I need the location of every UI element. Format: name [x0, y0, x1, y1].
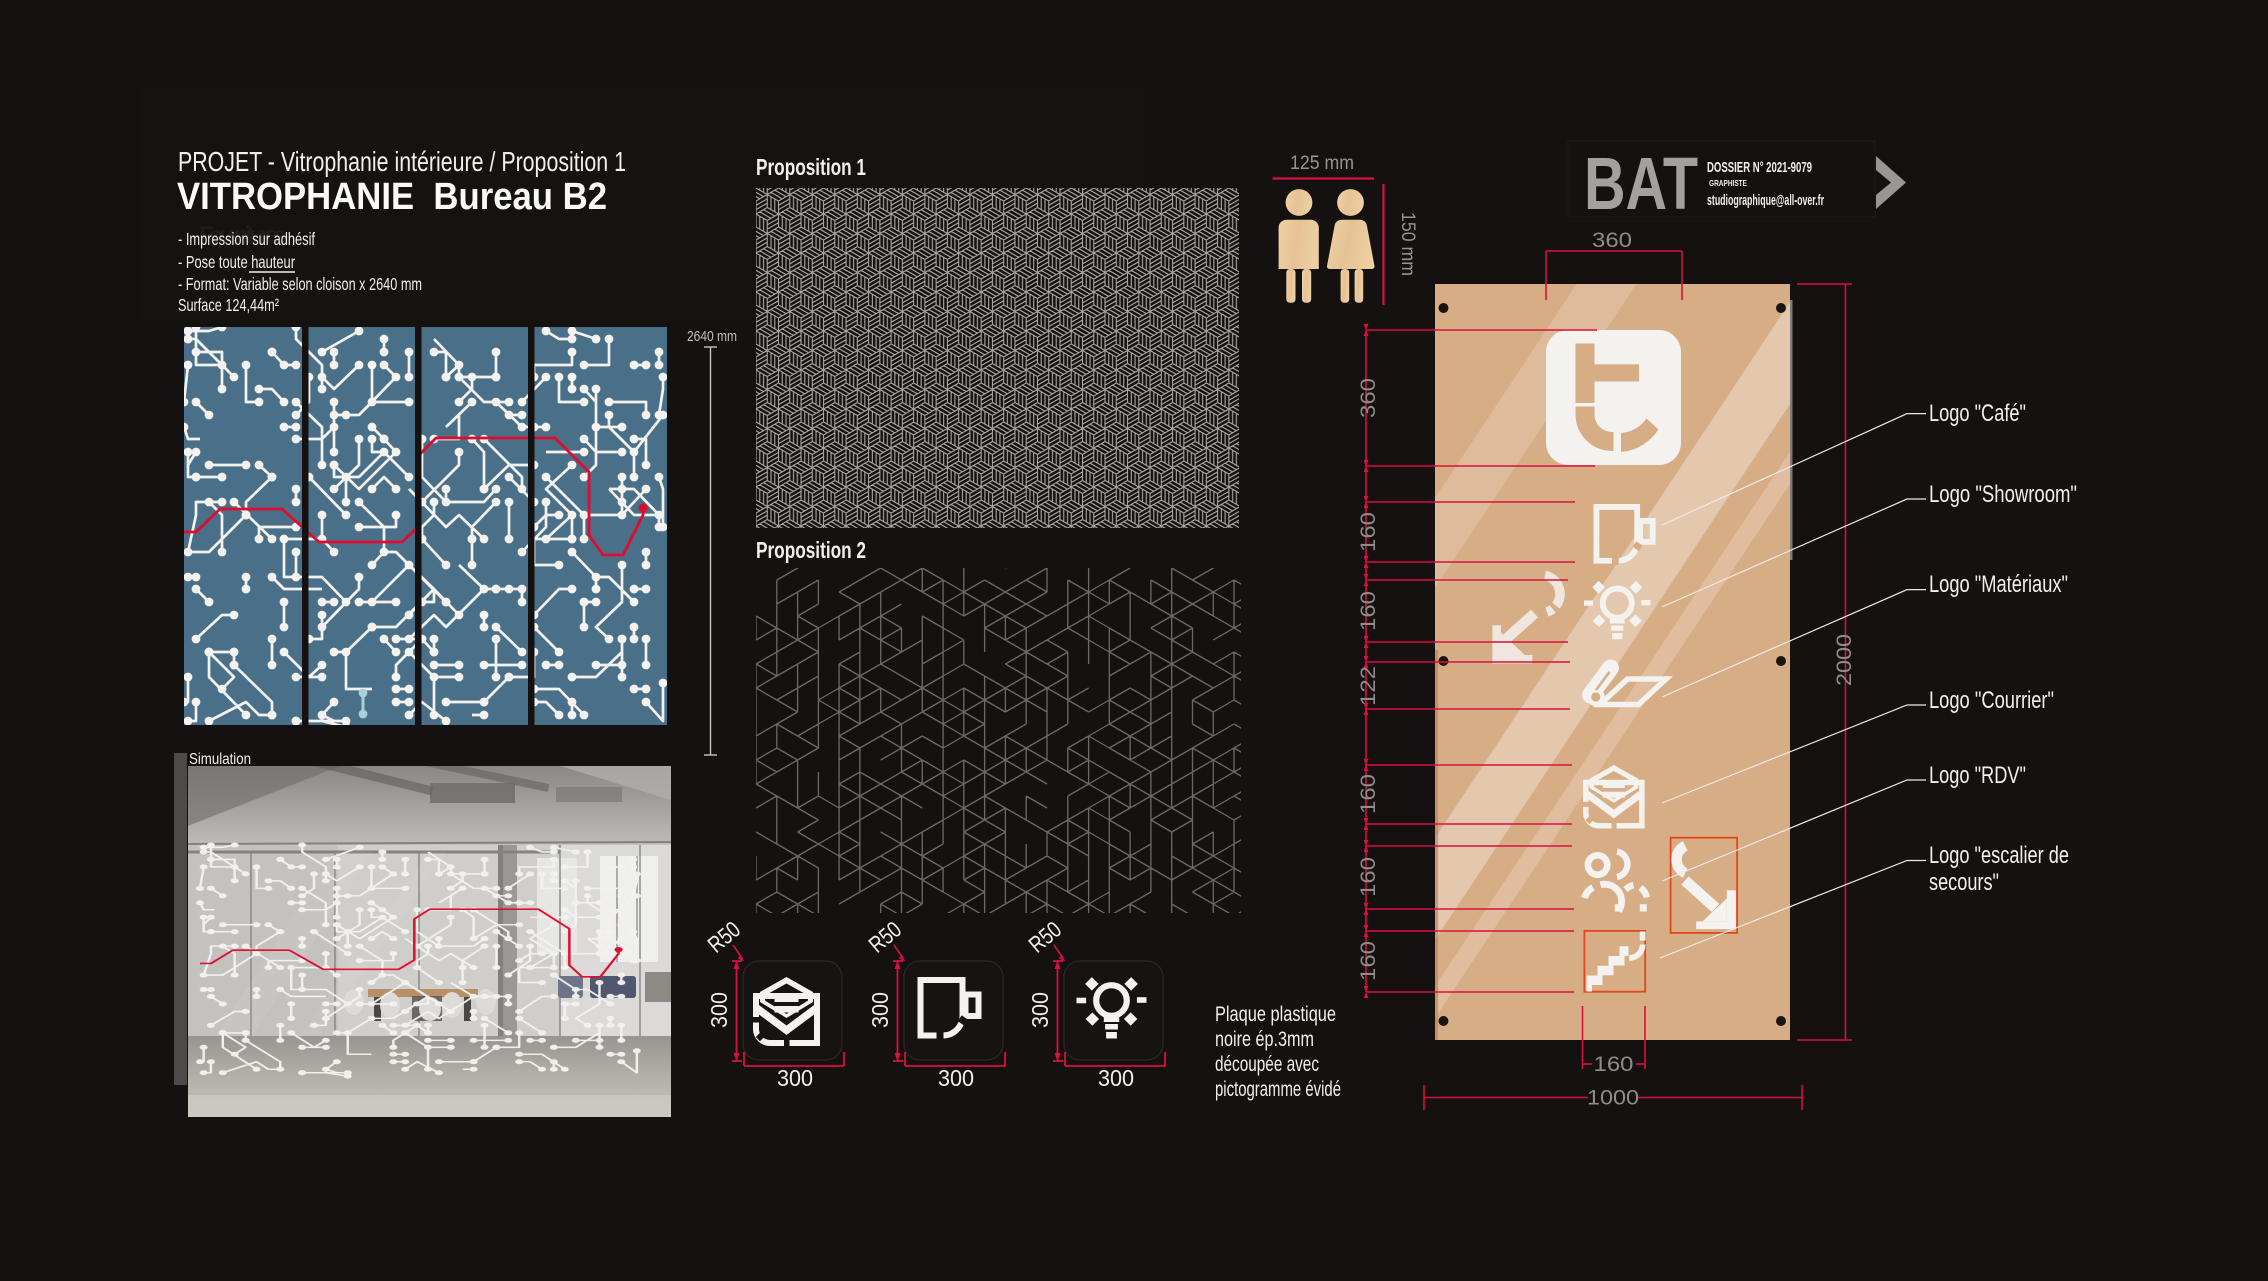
svg-text:160: 160: [1594, 1053, 1634, 1076]
svg-text:noire ép.3mm: noire ép.3mm: [1215, 1028, 1314, 1051]
svg-text:300: 300: [706, 992, 732, 1028]
svg-text:300: 300: [867, 992, 893, 1028]
svg-text:300: 300: [1098, 1065, 1134, 1091]
svg-text:secours": secours": [1929, 869, 1999, 896]
svg-text:Proposition 1: Proposition 1: [756, 154, 866, 180]
svg-text:150 mm: 150 mm: [1397, 212, 1418, 276]
svg-text:160: 160: [1357, 857, 1380, 897]
svg-text:122: 122: [1357, 666, 1380, 706]
svg-text:2640 mm: 2640 mm: [687, 328, 737, 345]
svg-text:125 mm: 125 mm: [1290, 153, 1354, 174]
svg-text:Logo "Matériaux": Logo "Matériaux": [1929, 571, 2068, 598]
svg-text:Surface 124,44m²: Surface 124,44m²: [178, 295, 279, 315]
svg-text:160: 160: [1357, 512, 1380, 552]
svg-text:VITROPHANIE Bureau B2: VITROPHANIE Bureau B2: [177, 176, 607, 218]
svg-text:160: 160: [1357, 591, 1380, 631]
svg-text:300: 300: [777, 1065, 813, 1091]
svg-text:GRAPHISTE: GRAPHISTE: [1709, 178, 1747, 188]
svg-text:Logo "RDV": Logo "RDV": [1929, 762, 2026, 789]
svg-text:2000: 2000: [1833, 634, 1856, 686]
svg-text:BAT: BAT: [1584, 142, 1698, 225]
svg-text:Plaque plastique: Plaque plastique: [1215, 1003, 1336, 1026]
svg-text:DOSSIER N° 2021-9079: DOSSIER N° 2021-9079: [1707, 159, 1812, 176]
svg-text:studiographique@all-over.fr: studiographique@all-over.fr: [1707, 193, 1824, 209]
svg-text:Proposition 2: Proposition 2: [756, 537, 866, 563]
svg-text:découpée avec: découpée avec: [1215, 1053, 1319, 1076]
svg-text:360: 360: [1357, 378, 1380, 418]
svg-text:Simulation: Simulation: [189, 751, 251, 768]
svg-text:300: 300: [938, 1065, 974, 1091]
svg-text:Logo "Showroom": Logo "Showroom": [1929, 481, 2077, 508]
svg-text:- Impression sur adhésif: - Impression sur adhésif: [178, 229, 315, 249]
svg-text:Logo "escalier de: Logo "escalier de: [1929, 842, 2069, 869]
svg-text:Logo "Café": Logo "Café": [1929, 400, 2026, 427]
svg-text:1000: 1000: [1587, 1087, 1639, 1110]
svg-text:300: 300: [1027, 992, 1053, 1028]
svg-text:PROJET - Vitrophanie intérieur: PROJET - Vitrophanie intérieure / Propos…: [178, 146, 626, 177]
svg-text:160: 160: [1357, 941, 1380, 981]
svg-text:360: 360: [1592, 229, 1632, 252]
svg-text:- Pose toute hauteur: - Pose toute hauteur: [178, 252, 295, 272]
svg-text:160: 160: [1357, 774, 1380, 814]
svg-text:- Format: Variable selon clois: - Format: Variable selon cloison x 2640 …: [178, 274, 422, 294]
svg-text:Logo "Courrier": Logo "Courrier": [1929, 687, 2054, 714]
svg-text:pictogramme évidé: pictogramme évidé: [1215, 1078, 1341, 1101]
